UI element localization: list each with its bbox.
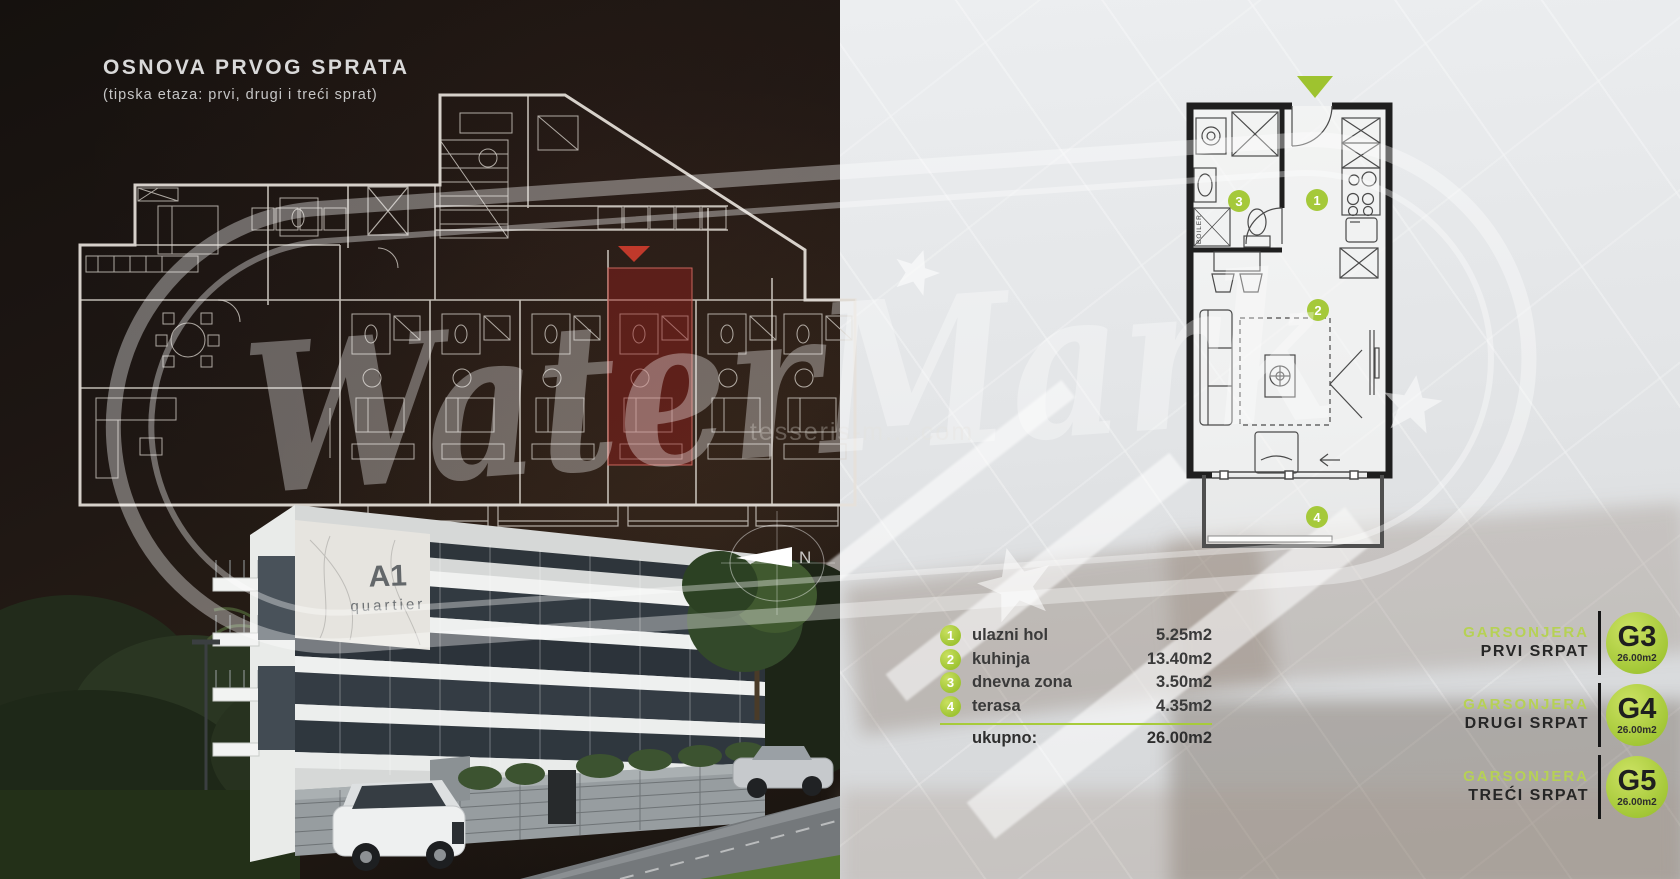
divider-bar bbox=[1598, 755, 1601, 819]
legend-value: 13.40m2 bbox=[1124, 650, 1212, 669]
divider-bar bbox=[1598, 683, 1601, 747]
unit-code: G3 bbox=[1618, 623, 1657, 652]
stairs-icon bbox=[440, 140, 508, 238]
badge-3: 3 bbox=[1235, 194, 1242, 209]
badge-1: 1 bbox=[1313, 193, 1320, 208]
legend-total-value: 26.00m2 bbox=[1124, 729, 1212, 748]
entry-arrow-icon bbox=[1297, 76, 1333, 98]
unit-furniture bbox=[352, 314, 420, 459]
unit-area: 26.00m2 bbox=[1617, 653, 1656, 664]
car-suv-white bbox=[333, 780, 465, 871]
terrace-railing bbox=[1208, 536, 1332, 542]
building-logo-line1: A1 bbox=[368, 559, 407, 593]
terrace-floor bbox=[1204, 475, 1382, 546]
unit-code: G4 bbox=[1618, 695, 1657, 724]
unit-floor-label: TREĆI SRPAT bbox=[1463, 786, 1589, 806]
unit-labels: GARSONJERA DRUGI SRPAT bbox=[1463, 696, 1589, 735]
elevator-icon bbox=[368, 187, 408, 235]
legend-row: 4 terasa 4.35m2 bbox=[940, 695, 1212, 719]
apartment-floor bbox=[1190, 106, 1389, 475]
badge-2: 2 bbox=[1314, 303, 1321, 318]
unit-badge-g5: G5 26.00m2 bbox=[1606, 756, 1668, 818]
legend-row: 2 kuhinja 13.40m2 bbox=[940, 648, 1212, 672]
flyer-canvas: OSNOVA PRVOG SPRATA (tipska etaza: prvi,… bbox=[0, 0, 1680, 879]
unit-area: 26.00m2 bbox=[1617, 725, 1656, 736]
unit-marker-triangle-icon bbox=[618, 246, 650, 262]
unit-row-g5: GARSONJERA TREĆI SRPAT G5 26.00m2 bbox=[1418, 751, 1668, 823]
page-subtitle: (tipska etaza: prvi, drugi i treći sprat… bbox=[103, 87, 410, 103]
north-arrow-icon bbox=[736, 547, 792, 567]
unit-type-label: GARSONJERA bbox=[1463, 696, 1589, 715]
area-legend: 1 ulazni hol 5.25m2 2 kuhinja 13.40m2 3 … bbox=[940, 624, 1212, 748]
apartment-floor-plan: BOILER bbox=[1182, 68, 1397, 563]
building-render: A1 quartier bbox=[0, 460, 840, 879]
unit-furniture bbox=[708, 314, 776, 459]
legend-total-label: ukupno: bbox=[972, 729, 1124, 748]
legend-badge-icon: 2 bbox=[940, 649, 961, 670]
unit-furniture bbox=[442, 314, 510, 459]
unit-badge-g3: G3 26.00m2 bbox=[1606, 612, 1668, 674]
unit-furniture bbox=[532, 314, 600, 459]
legend-badge-icon: 1 bbox=[940, 625, 961, 646]
legend-value: 5.25m2 bbox=[1124, 626, 1212, 645]
building-logo-line2: quartier bbox=[350, 596, 425, 616]
left-unit-furniture bbox=[86, 256, 330, 478]
boiler-label: BOILER bbox=[1196, 214, 1203, 244]
right-panel: BOILER bbox=[840, 0, 1680, 879]
legend-value: 3.50m2 bbox=[1124, 673, 1212, 692]
unit-code: G5 bbox=[1618, 767, 1657, 796]
badge-4: 4 bbox=[1313, 510, 1321, 525]
highlighted-unit bbox=[608, 268, 692, 465]
divider-bar bbox=[1598, 611, 1601, 675]
legend-label: dnevna zona bbox=[972, 673, 1124, 692]
legend-separator bbox=[940, 723, 1212, 725]
legend-badge-icon: 3 bbox=[940, 672, 961, 693]
unit-badge-g4: G4 26.00m2 bbox=[1606, 684, 1668, 746]
legend-row: 1 ulazni hol 5.25m2 bbox=[940, 624, 1212, 648]
left-panel: OSNOVA PRVOG SPRATA (tipska etaza: prvi,… bbox=[0, 0, 840, 879]
legend-value: 4.35m2 bbox=[1124, 697, 1212, 716]
compass: N bbox=[715, 505, 845, 617]
unit-row-g4: GARSONJERA DRUGI SRPAT G4 26.00m2 bbox=[1418, 679, 1668, 751]
legend-label: kuhinja bbox=[972, 650, 1124, 669]
unit-labels: GARSONJERA TREĆI SRPAT bbox=[1463, 768, 1589, 807]
unit-floor-label: PRVI SRPAT bbox=[1463, 642, 1589, 662]
legend-badge-icon: 4 bbox=[940, 696, 961, 717]
unit-labels: GARSONJERA PRVI SRPAT bbox=[1463, 624, 1589, 663]
legend-total-row: ukupno: 26.00m2 bbox=[940, 729, 1212, 748]
compass-north-label: N bbox=[799, 548, 811, 567]
unit-floor-label: DRUGI SRPAT bbox=[1463, 714, 1589, 734]
legend-row: 3 dnevna zona 3.50m2 bbox=[940, 671, 1212, 695]
unit-type-label: GARSONJERA bbox=[1463, 624, 1589, 643]
legend-label: ulazni hol bbox=[972, 626, 1124, 645]
unit-area: 26.00m2 bbox=[1617, 797, 1656, 808]
plan-title-block: OSNOVA PRVOG SPRATA (tipska etaza: prvi,… bbox=[103, 56, 410, 103]
unit-furniture bbox=[784, 314, 852, 459]
legend-label: terasa bbox=[972, 697, 1124, 716]
unit-row-g3: GARSONJERA PRVI SRPAT G3 26.00m2 bbox=[1418, 607, 1668, 679]
unit-type-label: GARSONJERA bbox=[1463, 768, 1589, 787]
page-title: OSNOVA PRVOG SPRATA bbox=[103, 56, 410, 80]
unit-list: GARSONJERA PRVI SRPAT G3 26.00m2 GARSONJ… bbox=[1418, 607, 1668, 823]
